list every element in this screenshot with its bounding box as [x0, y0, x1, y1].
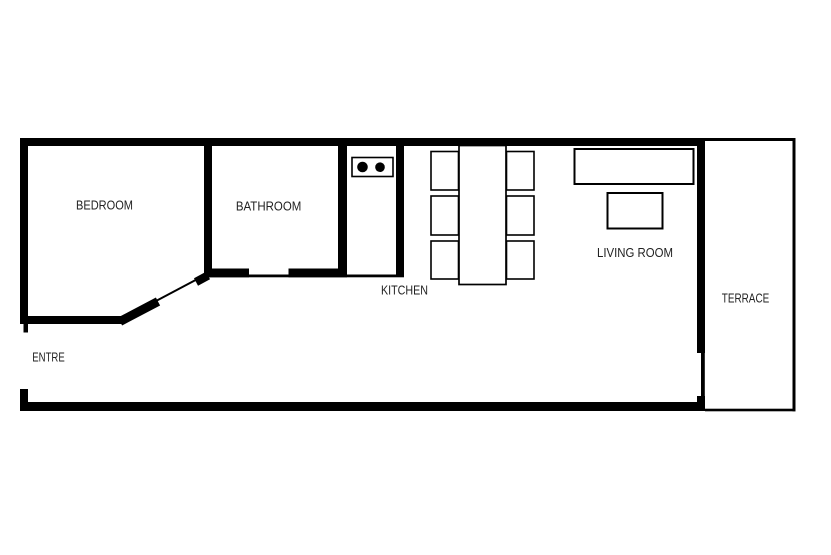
svg-text:TERRACE: TERRACE	[722, 292, 770, 306]
svg-text:LIVING ROOM: LIVING ROOM	[597, 246, 673, 260]
svg-text:KITCHEN: KITCHEN	[381, 284, 428, 298]
svg-text:BEDROOM: BEDROOM	[76, 199, 133, 213]
svg-text:BATHROOM: BATHROOM	[236, 200, 302, 214]
svg-text:ENTRE: ENTRE	[32, 351, 64, 365]
